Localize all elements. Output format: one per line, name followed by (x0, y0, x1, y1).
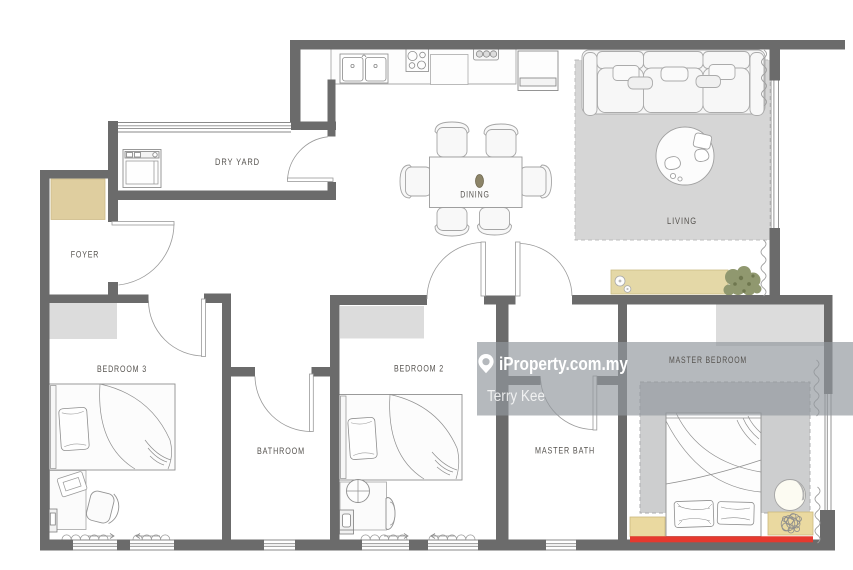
svg-text:iProperty.com.my: iProperty.com.my (499, 353, 629, 374)
svg-text:BEDROOM 2: BEDROOM 2 (394, 363, 444, 373)
svg-text:BEDROOM 3: BEDROOM 3 (97, 364, 147, 374)
svg-text:LIVING: LIVING (667, 216, 697, 226)
svg-text:MASTER BEDROOM: MASTER BEDROOM (669, 355, 747, 365)
svg-text:MASTER BATH: MASTER BATH (535, 445, 595, 455)
svg-text:DINING: DINING (460, 189, 490, 199)
svg-text:BATHROOM: BATHROOM (257, 446, 305, 456)
svg-text:Terry Kee: Terry Kee (487, 388, 545, 405)
svg-text:FOYER: FOYER (71, 250, 100, 260)
svg-text:DRY YARD: DRY YARD (215, 157, 260, 167)
